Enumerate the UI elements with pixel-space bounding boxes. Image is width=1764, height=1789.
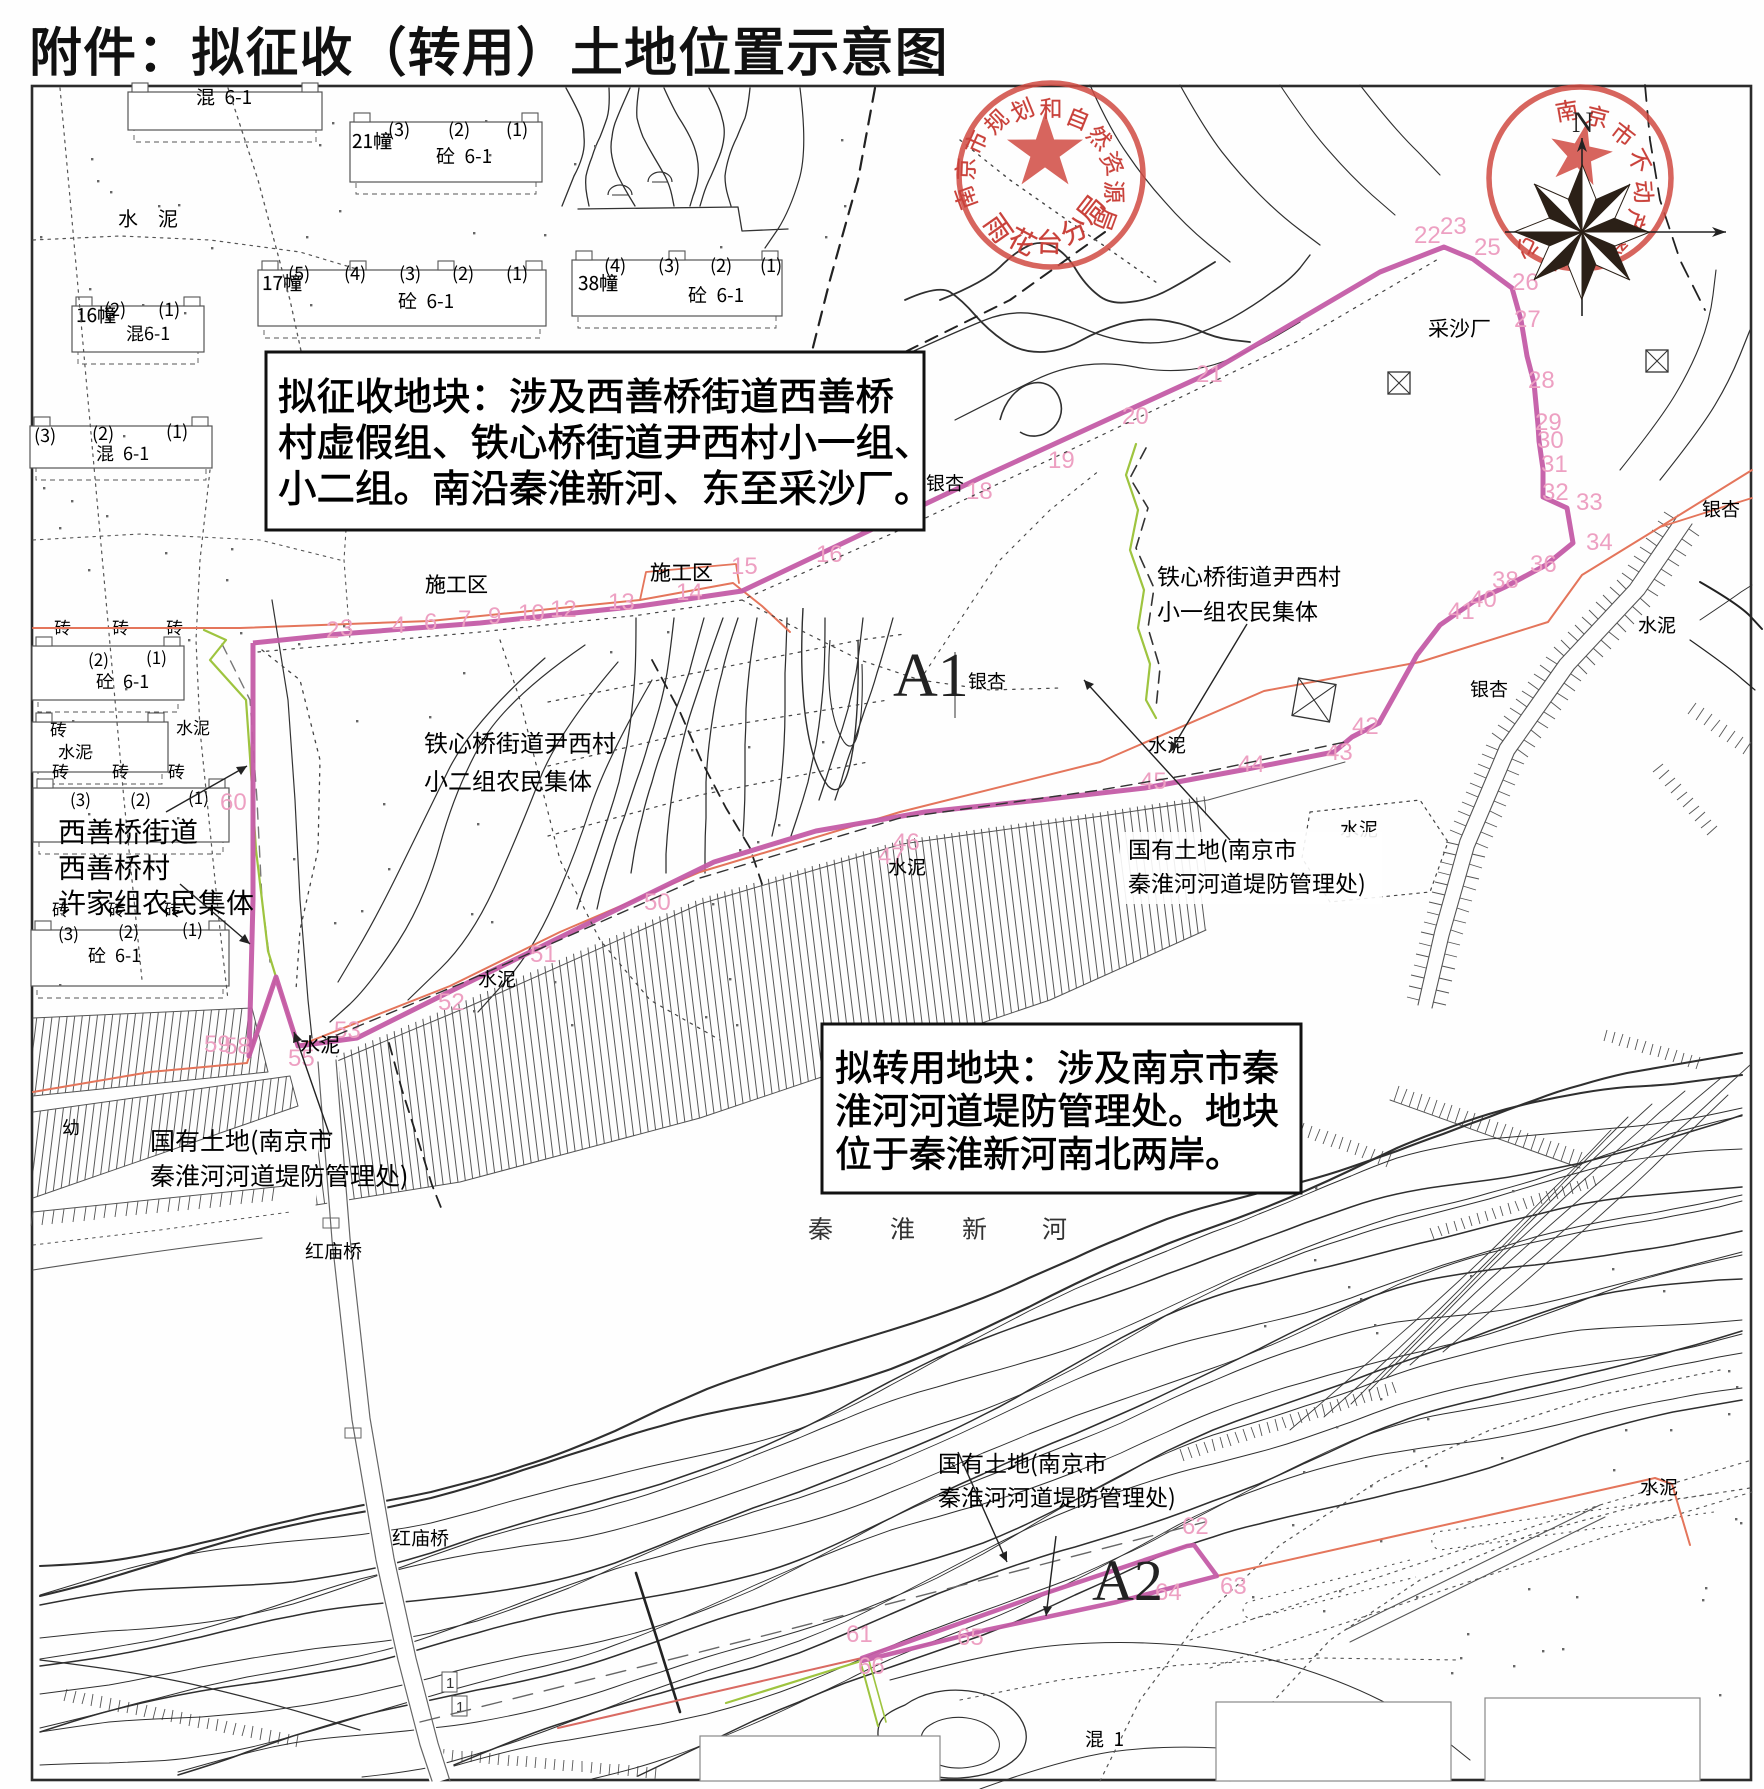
svg-text:52: 52 [438, 989, 465, 1016]
svg-text:44: 44 [1238, 751, 1265, 778]
svg-text:34: 34 [1586, 529, 1613, 556]
svg-text:A2: A2 [1092, 1548, 1163, 1613]
svg-text:60: 60 [220, 789, 247, 816]
svg-text:N: N [1572, 106, 1594, 139]
svg-text:25: 25 [1474, 234, 1501, 261]
svg-text:51: 51 [530, 941, 557, 968]
svg-text:33: 33 [1576, 489, 1603, 516]
svg-text:31: 31 [1541, 451, 1568, 478]
svg-text:62: 62 [1182, 1513, 1209, 1540]
svg-text:26: 26 [1512, 269, 1539, 296]
svg-text:19: 19 [1048, 447, 1075, 474]
svg-text:1: 1 [456, 1699, 464, 1716]
svg-text:4: 4 [392, 612, 405, 639]
svg-text:20: 20 [1122, 403, 1149, 430]
svg-text:3: 3 [340, 615, 353, 642]
svg-text:9: 9 [488, 603, 501, 630]
svg-text:42: 42 [1352, 713, 1379, 740]
svg-text:30: 30 [1537, 427, 1564, 454]
svg-text:2: 2 [326, 617, 339, 644]
svg-text:23: 23 [1440, 213, 1467, 240]
svg-text:61: 61 [846, 1621, 873, 1648]
svg-text:14: 14 [676, 579, 703, 606]
svg-text:22: 22 [1414, 222, 1441, 249]
svg-text:6: 6 [424, 609, 437, 636]
svg-text:45: 45 [1140, 768, 1167, 795]
svg-text:21: 21 [1196, 361, 1223, 388]
svg-text:16: 16 [816, 541, 843, 568]
svg-text:59: 59 [204, 1031, 231, 1058]
svg-text:A1: A1 [893, 642, 969, 710]
svg-text:32: 32 [1542, 479, 1569, 506]
svg-text:28: 28 [1528, 367, 1555, 394]
svg-text:15: 15 [731, 553, 758, 580]
svg-text:12: 12 [550, 596, 577, 623]
svg-text:10: 10 [518, 600, 545, 627]
svg-text:7: 7 [458, 606, 471, 633]
svg-text:41: 41 [1448, 598, 1475, 625]
svg-text:50: 50 [644, 889, 671, 916]
svg-text:36: 36 [1530, 551, 1557, 578]
svg-text:66: 66 [858, 1653, 885, 1680]
svg-text:18: 18 [966, 478, 993, 505]
svg-text:13: 13 [608, 589, 635, 616]
svg-text:1: 1 [446, 1675, 454, 1692]
svg-text:65: 65 [957, 1624, 984, 1651]
svg-text:27: 27 [1514, 306, 1541, 333]
svg-text:63: 63 [1220, 1573, 1247, 1600]
